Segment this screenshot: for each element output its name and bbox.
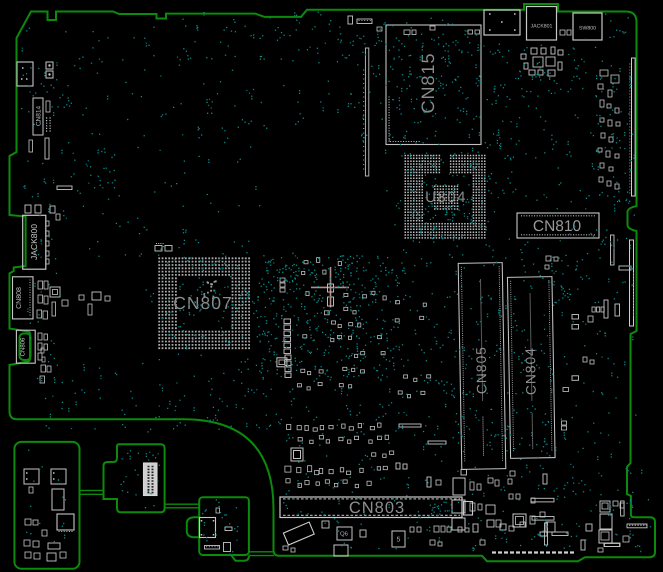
svg-text:CN815: CN815 bbox=[418, 52, 438, 113]
svg-text:CN803: CN803 bbox=[349, 499, 405, 517]
svg-text:JACK801: JACK801 bbox=[531, 24, 553, 30]
svg-text:SW800: SW800 bbox=[579, 26, 596, 32]
svg-text:CN806: CN806 bbox=[20, 337, 27, 356]
svg-text:CN808: CN808 bbox=[16, 287, 23, 309]
svg-text:JACK800: JACK800 bbox=[29, 224, 39, 260]
svg-text:CN805: CN805 bbox=[474, 346, 490, 394]
svg-text:Q6: Q6 bbox=[340, 531, 349, 538]
svg-text:CN807: CN807 bbox=[173, 293, 232, 313]
svg-text:CN814: CN814 bbox=[36, 105, 43, 126]
svg-text:CN804: CN804 bbox=[523, 347, 539, 395]
svg-text:5: 5 bbox=[397, 537, 401, 544]
